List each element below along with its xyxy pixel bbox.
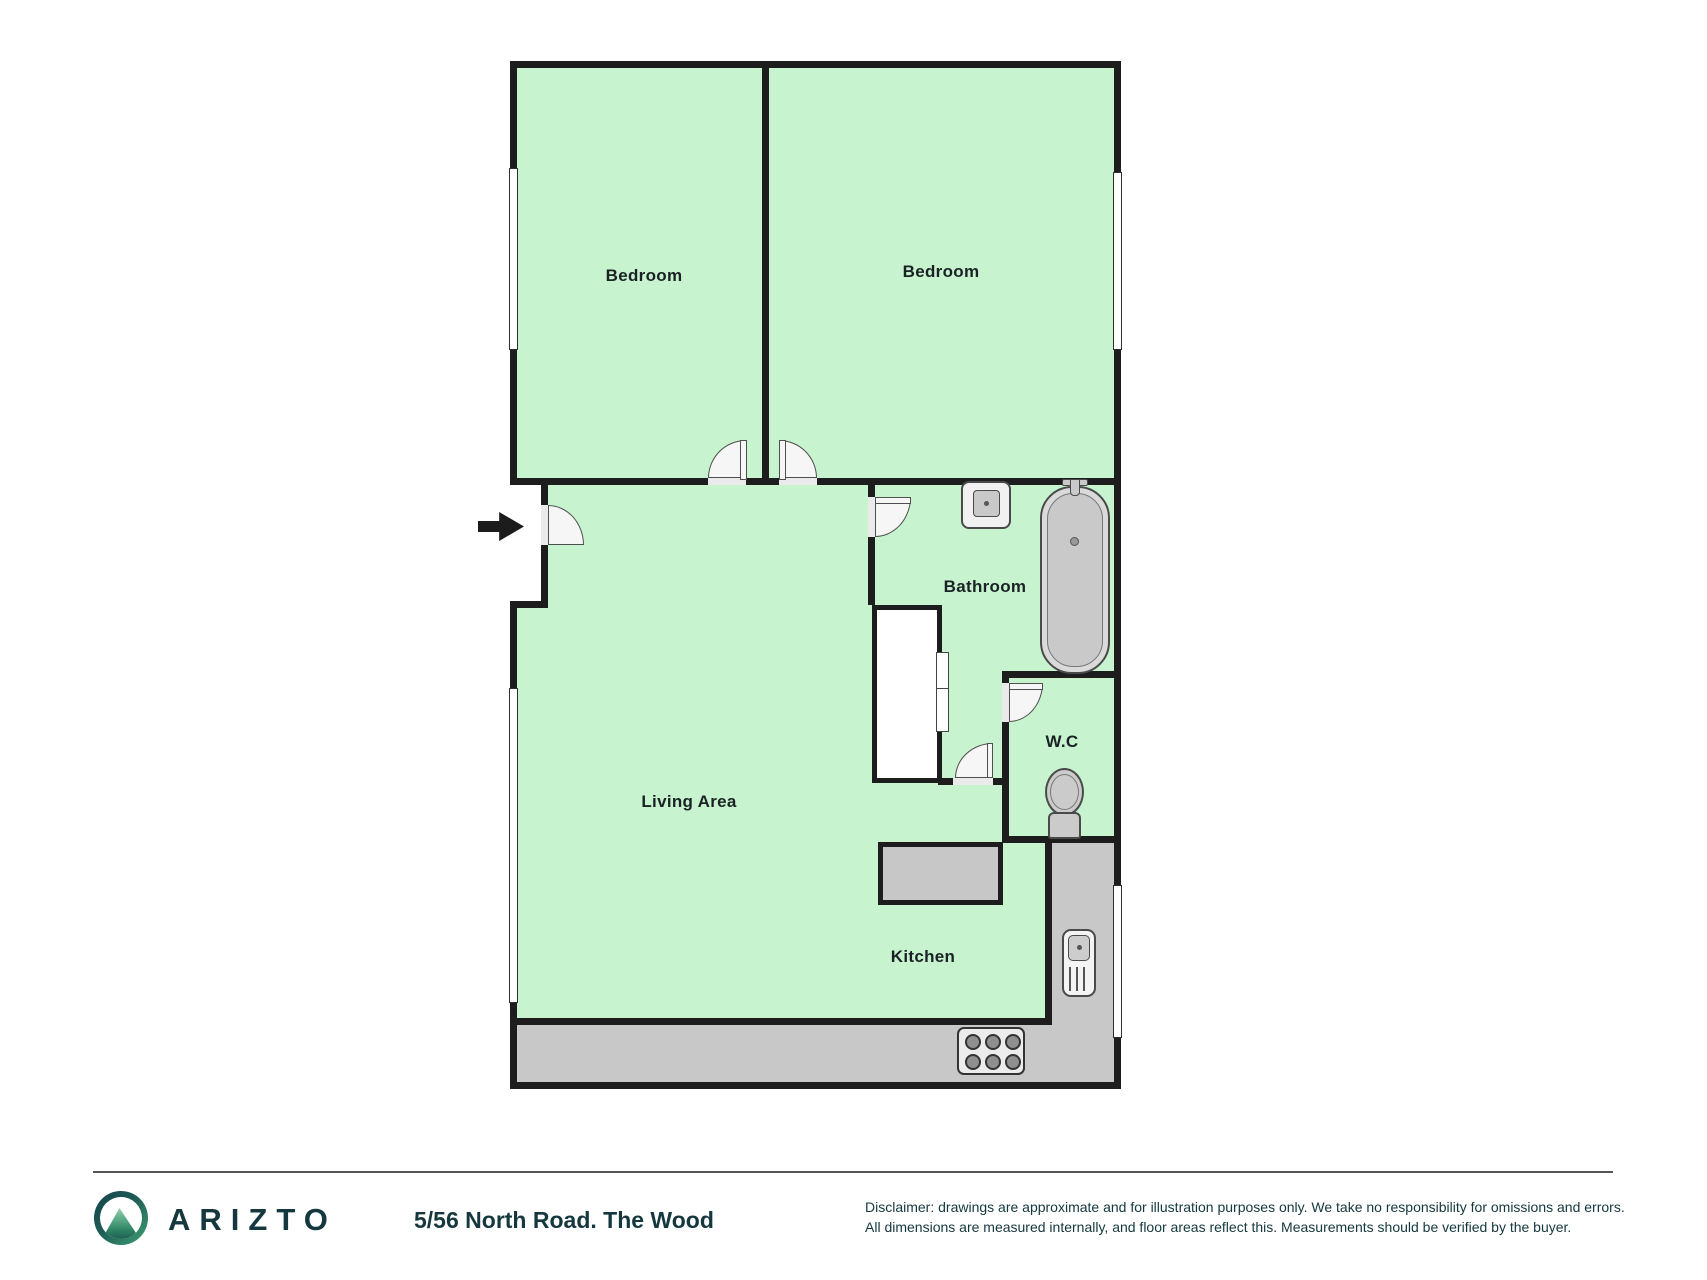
toilet-bowl-inner (1050, 774, 1079, 810)
closet-slider (936, 688, 949, 732)
stove-burner (965, 1054, 981, 1070)
logo-inner-circle (100, 1197, 142, 1239)
stove-burner (1005, 1054, 1021, 1070)
sink-drain-dot (984, 501, 989, 506)
wall (868, 537, 875, 605)
toilet-tank (1048, 812, 1081, 839)
wall (868, 485, 875, 497)
room-label-bedroom-right: Bedroom (903, 262, 980, 282)
door-panel (875, 497, 911, 504)
door-threshold (953, 778, 993, 785)
floor-area (517, 68, 1114, 1082)
window-icon (1113, 172, 1122, 350)
window-icon (509, 688, 518, 1003)
wall (541, 545, 548, 608)
sink-drain-dot (1077, 945, 1082, 950)
bedroom-divider-wall (762, 68, 769, 478)
stove-icon (957, 1027, 1025, 1075)
disclaimer-line-2: All dimensions are measured internally, … (865, 1217, 1665, 1237)
brand-logo (94, 1191, 148, 1245)
wall (1045, 836, 1052, 1025)
door-threshold (868, 497, 875, 537)
closet-icon (872, 605, 942, 783)
door-panel (1009, 683, 1043, 690)
wall (746, 478, 779, 485)
room-label-kitchen: Kitchen (891, 947, 955, 967)
brand-name: ARIZTO (168, 1200, 337, 1240)
bathtub-drain-dot (1070, 537, 1079, 546)
stove-burner (965, 1034, 981, 1050)
door-threshold (1002, 683, 1009, 722)
wall (510, 61, 1121, 68)
property-address: 5/56 North Road. The Wood (414, 1200, 714, 1240)
window-icon (509, 168, 518, 350)
disclaimer: Disclaimer: drawings are approximate and… (865, 1197, 1665, 1237)
room-label-wc: W.C (1045, 732, 1078, 752)
room-label-living-area: Living Area (641, 792, 736, 812)
floor-plan: Bedroom Bedroom Bathroom W.C Living Area… (0, 0, 1707, 1160)
wall (510, 478, 708, 485)
footer: ARIZTO 5/56 North Road. The Wood Disclai… (0, 1160, 1707, 1280)
room-label-bedroom-left: Bedroom (606, 266, 683, 286)
door-panel (987, 743, 993, 778)
room-label-bathroom: Bathroom (944, 577, 1027, 597)
door-panel (779, 440, 786, 480)
wall (510, 1082, 1121, 1089)
bathtub-inner (1047, 493, 1103, 667)
wall (510, 1018, 1051, 1025)
door-panel (740, 440, 747, 480)
wall (541, 478, 548, 505)
footer-divider (93, 1171, 1613, 1173)
wall (993, 778, 1008, 785)
stove-burner (985, 1054, 1001, 1070)
door-threshold (541, 505, 548, 545)
mountain-logo-icon (102, 1208, 140, 1239)
island-counter (878, 842, 1003, 905)
stove-burner (1005, 1034, 1021, 1050)
window-icon (1113, 885, 1122, 1038)
disclaimer-line-1: Disclaimer: drawings are approximate and… (865, 1197, 1665, 1217)
entry-alcove-notch (510, 485, 541, 608)
stove-burner (985, 1034, 1001, 1050)
drainboard-lines (1069, 967, 1090, 991)
faucet-icon (1070, 479, 1080, 496)
